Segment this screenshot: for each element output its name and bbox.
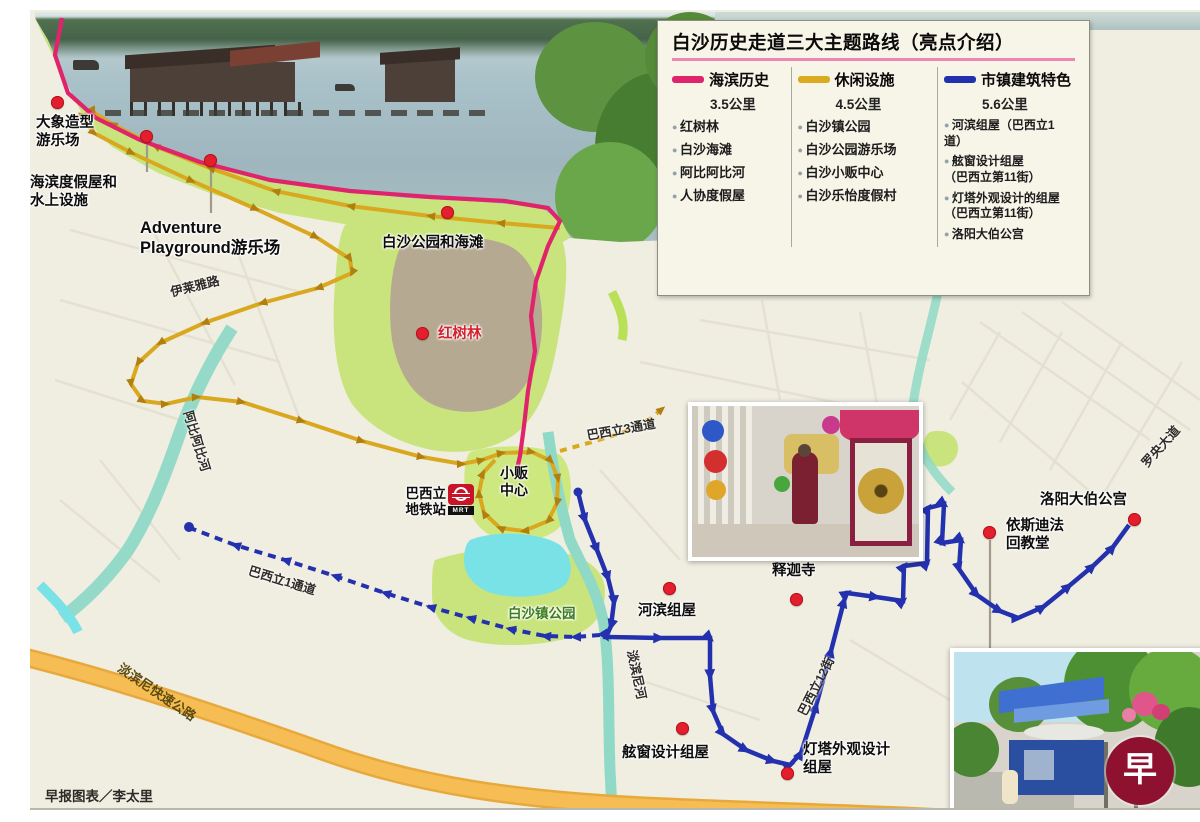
- mrt-icon-text: MRT: [448, 506, 474, 515]
- label-adventure: Adventure Playground游乐场: [140, 218, 280, 258]
- mangrove-area: [390, 237, 542, 412]
- poi-dot-lighthouse-flats: [781, 767, 794, 780]
- legend-item: 白沙乐怡度假村: [798, 188, 931, 205]
- label-hawker: 小贩 中心: [500, 465, 528, 499]
- poi-dot-riverside-flats: [663, 582, 676, 595]
- lantern-red: [704, 450, 727, 473]
- poi-dot-temple: [790, 593, 803, 606]
- label-temple: 释迦寺: [772, 563, 816, 581]
- label-elephant: 大象造型 游乐场: [36, 115, 94, 150]
- seaside-route-name: 海滨历史: [709, 69, 769, 90]
- label-chalets: 海滨度假屋和 水上设施: [30, 175, 117, 210]
- lantern-yellow: [706, 480, 726, 500]
- label-porthole-flats: 舷窗设计组屋: [622, 745, 709, 763]
- person: [1002, 770, 1018, 804]
- legend-item: 阿比阿比河: [672, 165, 785, 182]
- title-underline: [672, 58, 1075, 61]
- label-mrt-station: 巴西立 地铁站: [402, 486, 446, 519]
- town-route-swatch: [944, 76, 976, 83]
- monk-head: [798, 444, 811, 457]
- poi-dot-mosque: [983, 526, 996, 539]
- legend-box: 白沙历史走道三大主题路线（亮点介绍） 海滨历史 3.5公里 红树林 白沙海滩 阿…: [657, 20, 1090, 296]
- credit-line: 早报图表／李太里: [45, 785, 153, 805]
- bottom-rule: [30, 808, 1200, 810]
- legend-item: 人协度假屋: [672, 188, 785, 205]
- label-lighthouse-flats: 灯塔外观设计 组屋: [803, 742, 890, 777]
- legend-item: 白沙镇公园: [798, 119, 931, 136]
- legend-item: 灯塔外观设计的组屋 （巴西立第11街）: [944, 191, 1071, 222]
- legend-title: 白沙历史走道三大主题路线（亮点介绍）: [672, 31, 1077, 54]
- window: [1024, 750, 1054, 780]
- bougainvillea: [1152, 704, 1170, 720]
- poi-dot-porthole-flats: [676, 722, 689, 735]
- poi-dot-park-beach: [441, 206, 454, 219]
- legend-item: 河滨组屋（巴西立1道）: [944, 118, 1071, 149]
- label-park-beach: 白沙公园和海滩: [382, 235, 484, 253]
- legend-item: 红树林: [672, 119, 785, 136]
- pond: [464, 534, 571, 597]
- route-town-start: [184, 522, 194, 532]
- label-riverside-flats: 河滨组屋: [638, 603, 696, 621]
- foliage: [950, 722, 999, 777]
- town-route-distance: 5.6公里: [982, 93, 1071, 113]
- lantern-green: [774, 476, 790, 492]
- monk-figure: [792, 452, 818, 524]
- bougainvillea: [1122, 708, 1136, 722]
- leisure-route-distance: 4.5公里: [836, 93, 931, 113]
- label-mosque: 依斯迪法 回教堂: [1006, 518, 1064, 553]
- leisure-route-swatch: [798, 76, 830, 83]
- legend-item: 白沙海滩: [672, 142, 785, 159]
- map-canvas: 大象造型 游乐场 海滨度假屋和 水上设施 Adventure Playgroun…: [30, 10, 1200, 808]
- label-mangrove: 红树林: [438, 326, 482, 344]
- legend-column-seaside: 海滨历史 3.5公里 红树林 白沙海滩 阿比阿比河 人协度假屋: [672, 67, 791, 247]
- poi-dot-loyang-temple: [1128, 513, 1141, 526]
- mrt-icon: MRT: [448, 484, 474, 515]
- seaside-route-swatch: [672, 76, 704, 83]
- temple-photo: [688, 402, 923, 561]
- poi-dot-mangrove: [416, 327, 429, 340]
- legend-item: 洛阳大伯公宫: [944, 227, 1071, 243]
- poi-dot-elephant: [51, 96, 64, 109]
- legend-item: 白沙公园游乐场: [798, 142, 931, 159]
- label-loyang-temple: 洛阳大伯公宫: [1040, 492, 1127, 510]
- legend-column-leisure: 休闲设施 4.5公里 白沙镇公园 白沙公园游乐场 白沙小贩中心 白沙乐怡度假村: [791, 67, 937, 247]
- legend-item: 舷窗设计组屋 （巴西立第11街）: [944, 154, 1071, 185]
- lantern-pink: [822, 416, 840, 434]
- zaobao-logo: 早: [1106, 737, 1174, 805]
- house-photo: 早: [950, 648, 1200, 808]
- seaside-route-distance: 3.5公里: [710, 93, 785, 113]
- town-route-name: 市镇建筑特色: [981, 69, 1071, 90]
- leisure-route-name: 休闲设施: [835, 69, 895, 90]
- poi-dot-chalets: [140, 130, 153, 143]
- poi-dot-adventure: [204, 154, 217, 167]
- umbrella: [1024, 724, 1104, 740]
- legend-column-town: 市镇建筑特色 5.6公里 河滨组屋（巴西立1道） 舷窗设计组屋 （巴西立第11街…: [937, 67, 1077, 247]
- gong: [858, 468, 904, 514]
- label-town-park: 白沙镇公园: [508, 606, 576, 622]
- lantern-blue: [702, 420, 724, 442]
- infographic-page: 大象造型 游乐场 海滨度假屋和 水上设施 Adventure Playgroun…: [0, 0, 1200, 822]
- legend-item: 白沙小贩中心: [798, 165, 931, 182]
